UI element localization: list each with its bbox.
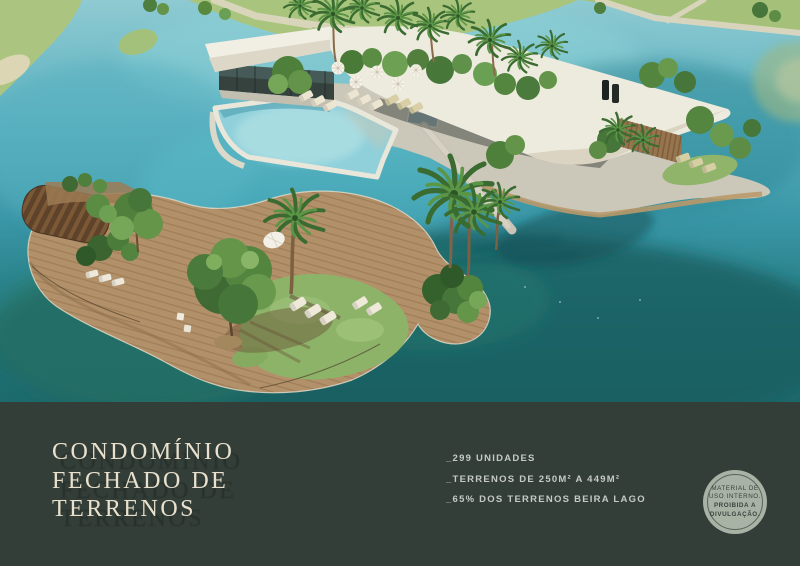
badge-ring: MATERIAL DE USO INTERNO. PROIBIDA A DIVU…: [707, 474, 763, 530]
chimney: [602, 80, 609, 100]
confidential-badge: MATERIAL DE USO INTERNO. PROIBIDA A DIVU…: [703, 470, 767, 534]
spec-bullet-lakefront: _65% DOS TERRENOS BEIRA LAGO: [446, 495, 646, 505]
badge-text-line: MATERIAL DE: [711, 485, 758, 494]
slide: CONDOMÍNIO FECHADO DE TERRENOS _299 UNID…: [0, 0, 800, 566]
badge-text-line: PROIBIDA A: [714, 502, 756, 511]
title-line: CONDOMÍNIO: [52, 438, 234, 467]
title-line: FECHADO DE: [52, 467, 234, 496]
badge-text-line: USO INTERNO.: [709, 493, 761, 502]
aerial-render-image: [0, 0, 800, 402]
chimney: [612, 84, 619, 103]
spec-bullet-units: _299 UNIDADES: [446, 454, 646, 464]
spec-bullet-list: _299 UNIDADES _TERRENOS DE 250M² A 449M²…: [446, 454, 646, 516]
spec-bullet-lot-size: _TERRENOS DE 250M² A 449M²: [446, 475, 646, 485]
title-line: TERRENOS: [52, 495, 234, 524]
badge-text-line: DIVULGAÇÃO.: [710, 511, 760, 520]
slide-title: CONDOMÍNIO FECHADO DE TERRENOS: [52, 438, 234, 524]
